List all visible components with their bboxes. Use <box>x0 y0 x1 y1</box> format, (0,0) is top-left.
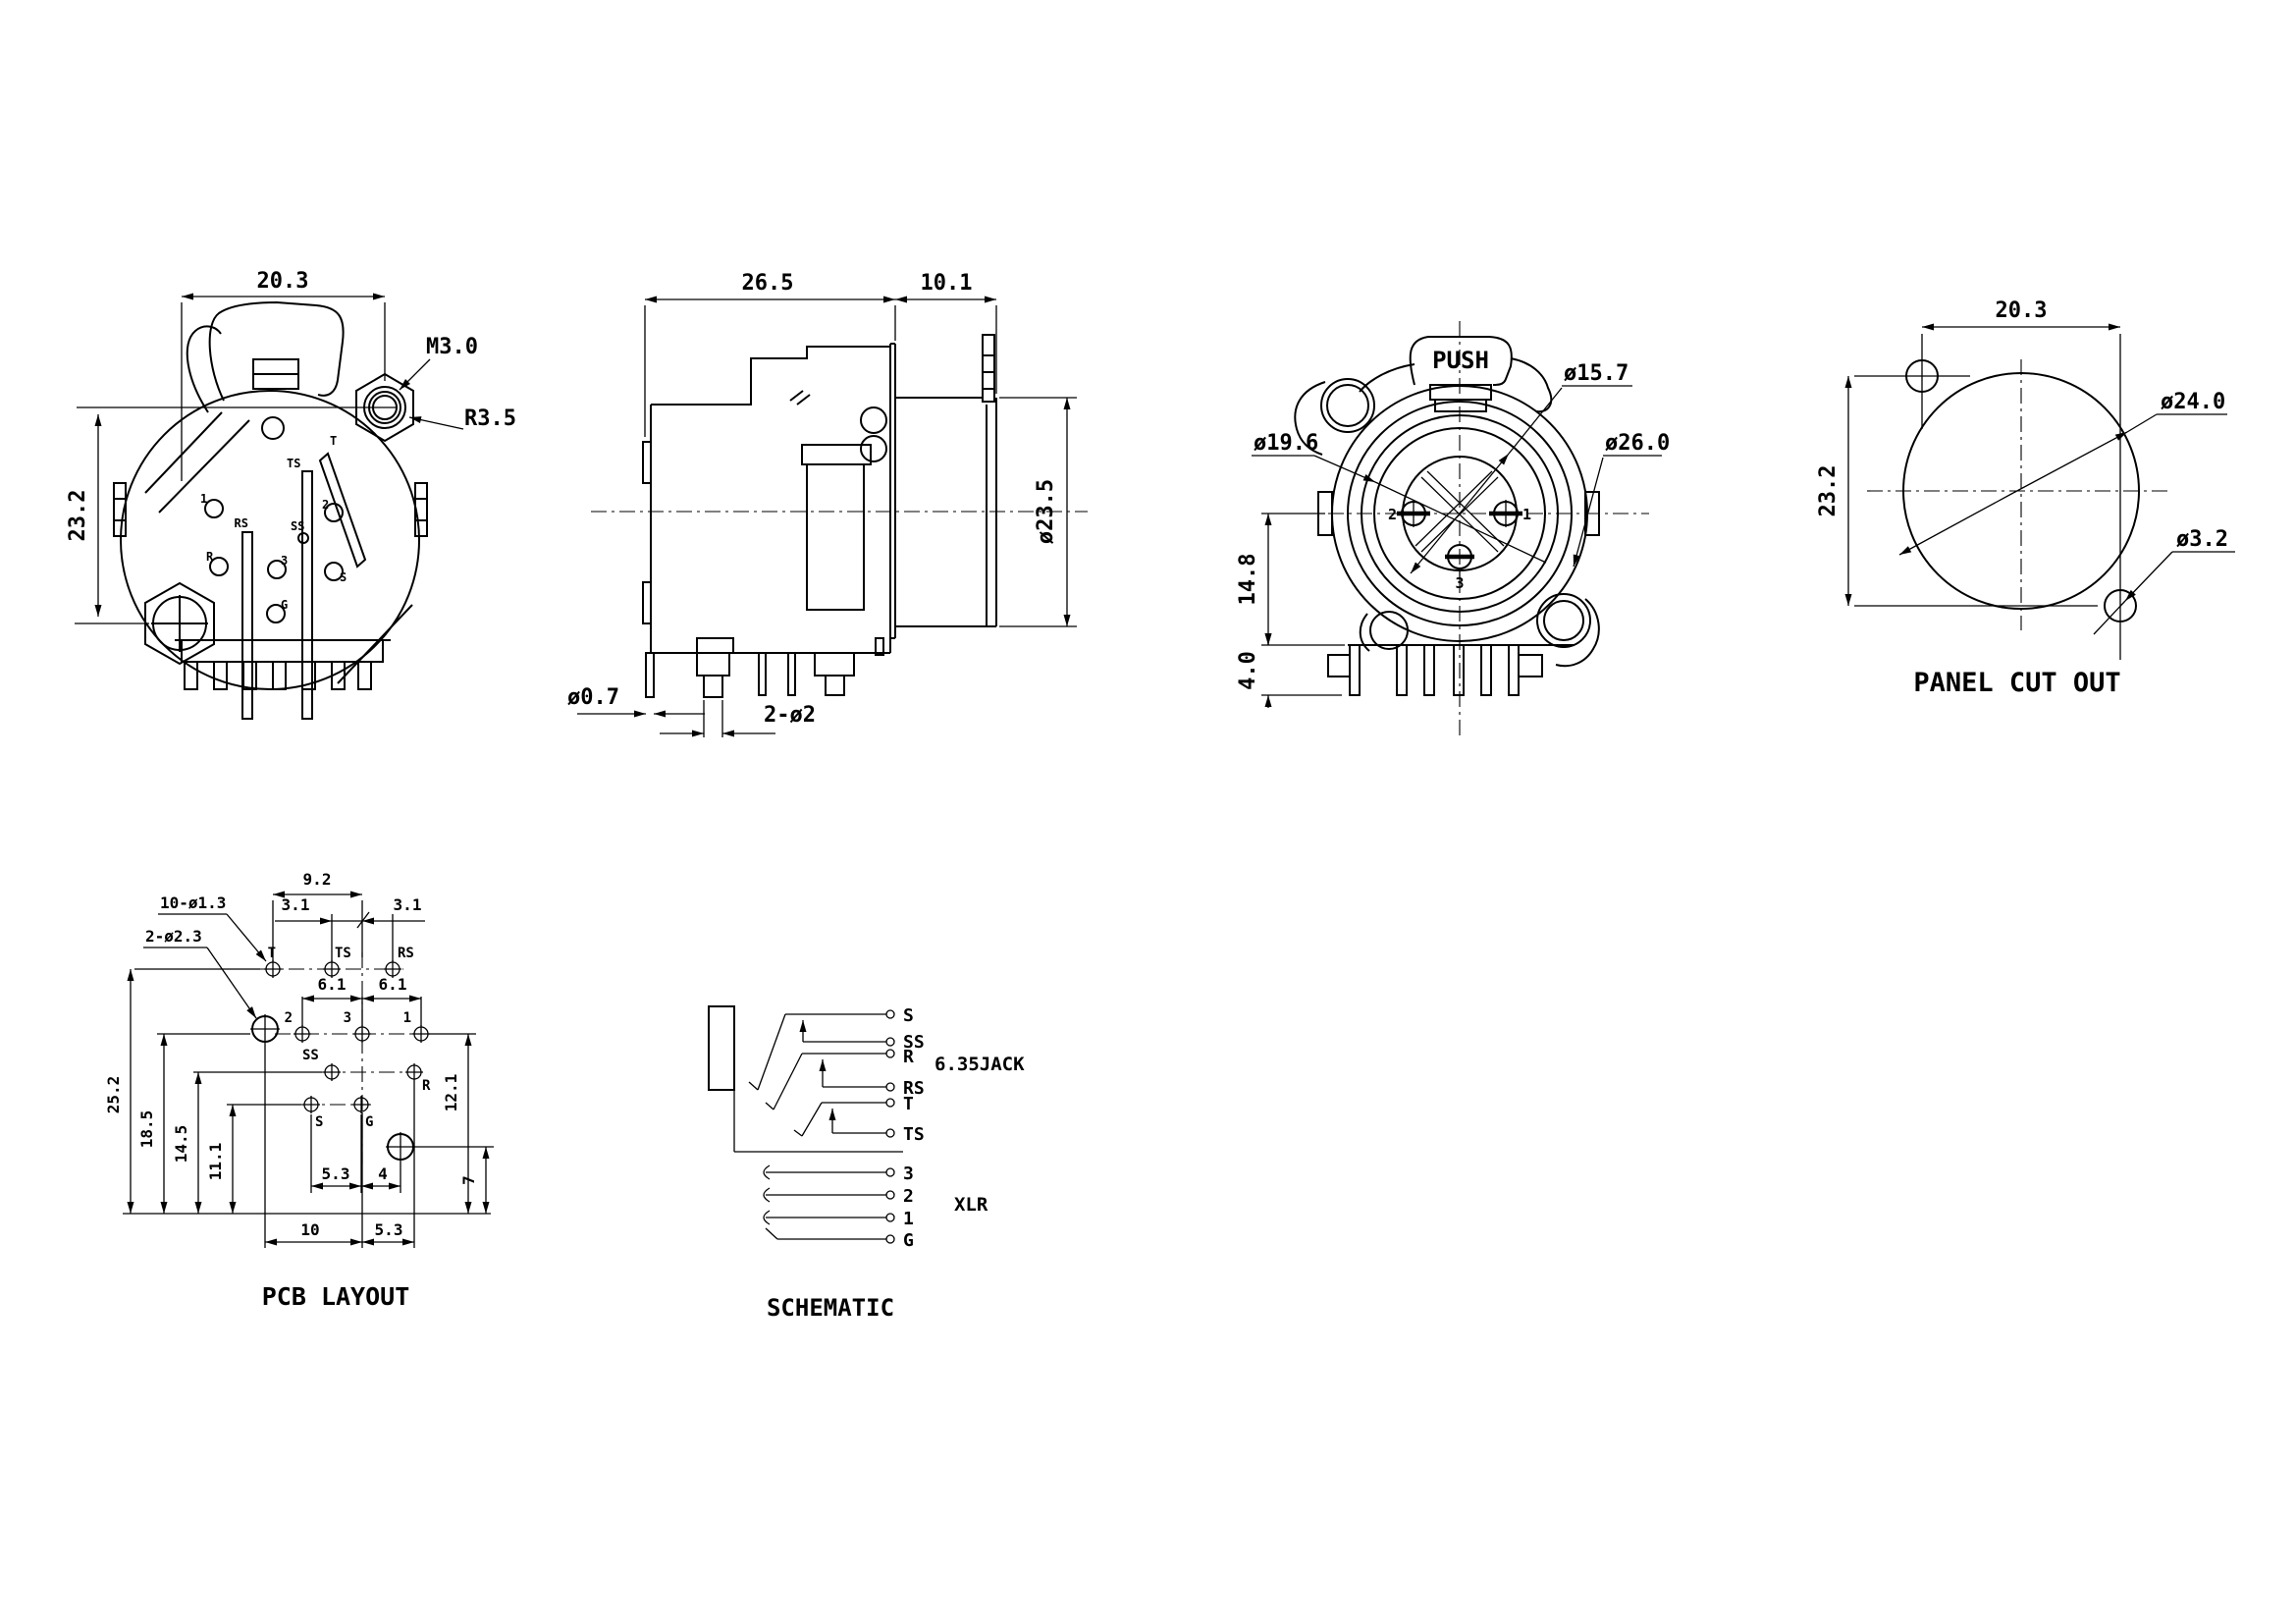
pcb-pad-rs: RS <box>398 946 414 961</box>
panel-dia-screw-hole: ø3.2 <box>2176 527 2228 552</box>
schematic-term-s: S <box>903 1005 914 1026</box>
pcb-pad-2: 2 <box>285 1010 293 1026</box>
rear-dia-inner: ø15.7 <box>1564 361 1629 386</box>
pcb-pad-g: G <box>365 1114 373 1130</box>
pcb-label-big-holes: 2-ø2.3 <box>145 927 202 946</box>
schematic-term-t: T <box>903 1094 914 1114</box>
pcb-dim-offset-right: 3.1 <box>394 895 422 914</box>
front-pin-g: G <box>281 598 288 612</box>
pcb-dim-h-total: 25.2 <box>104 1076 123 1114</box>
front-body-outline <box>114 302 427 689</box>
pcb-title: PCB LAYOUT <box>262 1282 410 1311</box>
pcb-dim-bot-left: 10 <box>300 1220 319 1239</box>
front-pin-rs: RS <box>235 516 248 530</box>
front-label-radius: R3.5 <box>464 406 516 431</box>
rear-pin-1: 1 <box>1522 506 1531 523</box>
pcb-layout-drawing: 9.2 3.1 3.1 10-ø1.3 2-ø2.3 6.1 6.1 25.2 … <box>83 849 545 1350</box>
pcb-dim-h-row4: 11.1 <box>206 1143 225 1181</box>
pcb-pad-1: 1 <box>403 1010 411 1026</box>
pcb-dim-bot-inner-right: 4 <box>378 1164 388 1183</box>
front-dim-height: 23.2 <box>66 490 90 542</box>
panel-cutout-drawing: 20.3 23.2 ø24.0 ø3.2 PANEL CUT OUT <box>1811 285 2282 746</box>
side-body-outline <box>643 335 996 653</box>
front-dim-width: 20.3 <box>257 269 309 294</box>
pcb-dim-h-row2: 18.5 <box>137 1110 156 1149</box>
pcb-label-small-holes: 10-ø1.3 <box>160 893 226 912</box>
panel-title: PANEL CUT OUT <box>1913 668 2120 698</box>
pcb-dim-right-lower: 7 <box>459 1175 478 1185</box>
front-pin-ss: SS <box>291 519 304 533</box>
schematic-drawing: S SS R RS T TS 6.35JACK 3 2 1 G XLR SCHE… <box>687 972 1080 1335</box>
side-dimensions <box>577 299 1077 737</box>
pcb-dim-top-width: 9.2 <box>303 870 332 889</box>
panel-dia-hole: ø24.0 <box>2161 390 2225 414</box>
front-pin-r: R <box>206 550 214 564</box>
pcb-dim-offset-left: 3.1 <box>282 895 310 914</box>
pcb-pad-r: R <box>422 1078 431 1094</box>
front-label-thread: M3.0 <box>426 335 478 359</box>
side-dim-barrel-dia: ø23.5 <box>1034 479 1058 544</box>
pcb-dim-pitch-left: 6.1 <box>318 975 347 994</box>
panel-dim-height: 23.2 <box>1816 465 1841 517</box>
schematic-term-g: G <box>903 1230 914 1251</box>
pcb-pad-s: S <box>315 1114 323 1130</box>
pcb-dim-bot-right: 5.3 <box>375 1220 403 1239</box>
rear-pins <box>1328 645 1574 695</box>
front-pin-2: 2 <box>322 498 329 512</box>
pcb-pad-ts: TS <box>335 946 351 961</box>
rear-pin-3: 3 <box>1455 574 1464 592</box>
pcb-dim-h-row3: 14.5 <box>172 1125 190 1164</box>
rear-dim-center-height: 14.8 <box>1236 554 1260 606</box>
front-hex-nut <box>145 583 214 664</box>
side-dim-pin-pair: 2-ø2 <box>764 703 816 728</box>
rear-pin-2: 2 <box>1388 506 1397 523</box>
schematic-term-ts: TS <box>903 1124 925 1145</box>
pcb-dim-bot-inner-left: 5.3 <box>322 1164 350 1183</box>
schematic-xlr <box>764 1165 894 1243</box>
pcb-pad-ss: SS <box>302 1048 319 1063</box>
side-dim-front-depth: 10.1 <box>921 271 973 296</box>
schematic-term-r: R <box>903 1047 914 1067</box>
front-pin-3: 3 <box>281 554 288 568</box>
rear-dia-outer: ø26.0 <box>1605 431 1670 456</box>
schematic-term-2: 2 <box>903 1186 914 1207</box>
pcb-dim-right-upper: 12.1 <box>442 1074 460 1112</box>
rear-label-push: PUSH <box>1432 347 1489 374</box>
pcb-dimensions <box>123 894 494 1248</box>
side-pins <box>646 638 883 697</box>
front-pin-t: T <box>330 434 337 448</box>
side-view-drawing: 26.5 10.1 ø23.5 ø0.7 2-ø2 <box>550 260 1129 790</box>
schematic-term-3: 3 <box>903 1164 914 1184</box>
pcb-dim-pit-right: 6.1 <box>379 975 407 994</box>
schematic-label-jack: 6.35JACK <box>934 1054 1025 1075</box>
schematic-jack <box>709 1006 903 1152</box>
pcb-pad-t: T <box>268 946 276 961</box>
side-dim-pin-dia: ø0.7 <box>567 685 619 710</box>
front-pin-s: S <box>340 570 347 584</box>
front-pin-ts: TS <box>287 457 300 470</box>
schematic-term-1: 1 <box>903 1209 914 1229</box>
rear-dia-middle: ø19.6 <box>1254 431 1318 456</box>
schematic-label-xlr: XLR <box>954 1194 988 1216</box>
pcb-pad-3: 3 <box>344 1010 351 1026</box>
drawing-sheet: 20.3 23.2 M3.0 R3.5 1 T TS 2 RS SS R 3 S… <box>0 0 2296 1624</box>
front-view-drawing: 20.3 23.2 M3.0 R3.5 1 T TS 2 RS SS R 3 S… <box>59 187 520 736</box>
panel-dim-width: 20.3 <box>1996 298 2048 323</box>
schematic-title: SCHEMATIC <box>767 1294 894 1322</box>
front-pin-1: 1 <box>200 492 207 506</box>
rear-view-drawing: PUSH ø19.6 ø15.7 ø26.0 14.8 4.0 2 1 3 <box>1232 309 1693 761</box>
side-dim-body-depth: 26.5 <box>742 271 794 296</box>
rear-dim-pin-length: 4.0 <box>1236 651 1260 690</box>
